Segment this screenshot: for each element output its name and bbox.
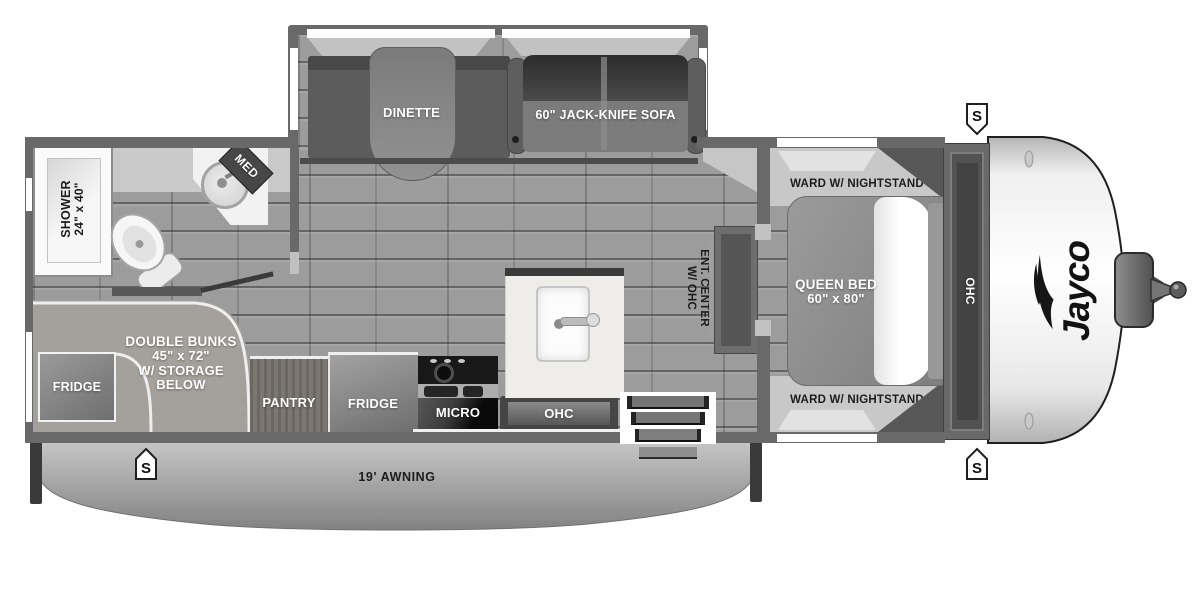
vanity-drain [217, 178, 227, 188]
dinette-label: DINETTE [369, 106, 454, 121]
sofa-label: 60" JACK-KNIFE SOFA [518, 108, 693, 122]
bed-labels: QUEEN BED 60" x 80" [781, 277, 891, 307]
sofa-center-seam [601, 57, 607, 150]
bedroom-divider-wall [757, 336, 770, 432]
awning-label: 19' AWNING [337, 470, 457, 484]
bedroom-window [777, 138, 877, 147]
svg-text:S: S [972, 460, 982, 477]
ward-top-label: WARD W/ NIGHTSTAND [770, 178, 944, 191]
rear-wall-window [26, 178, 32, 211]
range-knob [430, 359, 437, 363]
ent-center-trim [709, 242, 714, 338]
divider-end-cap [755, 224, 771, 240]
bedroom-divider-wall [757, 148, 770, 224]
rv-floorplan: 19' AWNING Jayco [0, 0, 1200, 600]
jayco-bird-icon [1032, 245, 1058, 337]
shower-label: SHOWER 24" x 40" [53, 149, 93, 269]
ent-center-label: ENT. CENTER W/ OHC [682, 228, 712, 348]
front-ohc-label: OHC [954, 261, 984, 321]
ward-top-cabinet [778, 151, 876, 171]
toilet [108, 200, 188, 300]
slideout-window-sill [502, 37, 694, 56]
entry-step [627, 396, 709, 409]
top-wall [25, 137, 292, 148]
bunk-labels: DOUBLE BUNKS 45" x 72" W/ STORAGE BELOW [106, 334, 256, 393]
cap-bolt [1025, 151, 1033, 167]
kitchen-fridge-label: FRIDGE [328, 397, 418, 412]
entry-step [639, 447, 697, 459]
ent-center-panel [721, 234, 751, 346]
entry-step [635, 429, 701, 442]
bedroom-window [777, 434, 877, 442]
jayco-logo: Jayco [1017, 206, 1109, 376]
sink-faucet-base [586, 313, 600, 327]
divider-end-cap [755, 320, 771, 336]
range-burner [434, 363, 454, 383]
svg-text:S: S [972, 108, 982, 125]
awning-end-cap-left [30, 438, 42, 504]
awning-end-cap-right [750, 438, 762, 502]
bathroom-door-jamb [290, 252, 299, 274]
sofa-cupholder [512, 136, 519, 143]
svg-text:S: S [141, 460, 151, 477]
rear-wall-window [26, 332, 32, 422]
speaker-badge: S [965, 447, 989, 481]
cap-bolt [1025, 413, 1033, 429]
slideout-side-window [290, 48, 298, 130]
bathroom-partition-wall [290, 148, 299, 252]
bottom-wall [25, 432, 622, 443]
range-knob [458, 359, 465, 363]
pantry-label: PANTRY [250, 396, 328, 411]
jayco-brand-text: Jayco [1058, 241, 1095, 341]
cooktop-grate [424, 386, 458, 397]
cooktop-grate [463, 386, 483, 397]
bunk-fridge-label: FRIDGE [38, 380, 116, 394]
kitchen-fridge [328, 352, 418, 432]
propane-cover [1115, 253, 1153, 327]
speaker-badge: S [965, 102, 989, 136]
slideout-window [502, 29, 690, 38]
speaker-badge: S [134, 447, 158, 481]
ward-bottom-cabinet [778, 410, 876, 430]
counter-edge [505, 268, 624, 276]
microwave-label: MICRO [418, 406, 498, 421]
slideout-threshold [300, 158, 698, 164]
entry-step [631, 412, 705, 425]
slideout-window [307, 29, 495, 38]
kitchen-ohc-label: OHC [500, 407, 618, 422]
hitch-ball [1170, 282, 1186, 298]
pantry [250, 356, 328, 432]
